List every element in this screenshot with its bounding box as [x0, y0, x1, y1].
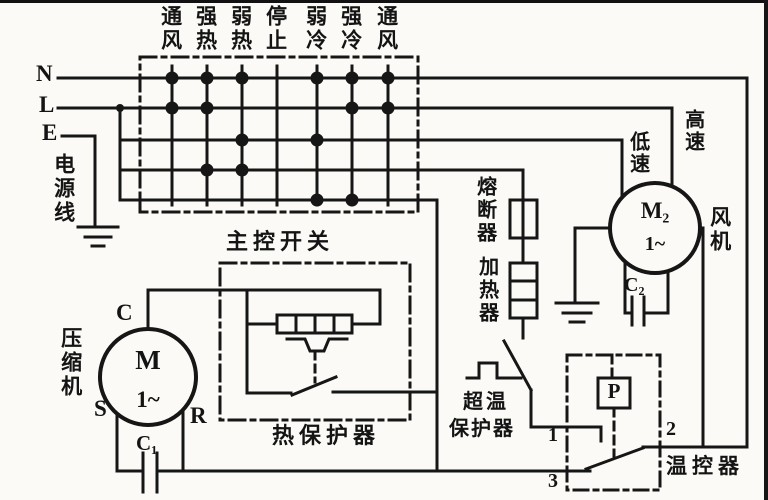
page-right-edge	[764, 0, 768, 500]
main-switch-matrix	[140, 57, 418, 212]
contact-dot	[346, 72, 359, 85]
label-overtemp-1: 超温	[463, 392, 509, 414]
overtemp-bimetal	[467, 363, 521, 378]
label-fuse: 熔断器	[473, 176, 495, 245]
switch-mode-label-6: 强冷	[339, 5, 362, 53]
label-high-speed: 高速	[681, 109, 703, 153]
contact-dot	[201, 72, 214, 85]
label-low-speed: 低速	[626, 131, 648, 175]
protector-bimetal	[287, 339, 347, 351]
contact-dot	[311, 194, 324, 207]
switch-mode-label-7: 通风	[375, 5, 398, 53]
contact-dot	[201, 164, 214, 177]
thermal-protector	[220, 263, 437, 420]
label-terminal-r: R	[190, 404, 207, 429]
contact-dot	[382, 102, 395, 115]
fan-circuit	[556, 78, 747, 447]
label-fan: 风机	[708, 206, 731, 254]
label-terminal-s: S	[94, 397, 107, 422]
contact-dot	[346, 102, 359, 115]
label-line-l: L	[39, 93, 54, 118]
label-thermostat-3: 3	[548, 471, 558, 493]
label-thermostat: 温控器	[666, 455, 744, 478]
label-compressor-phase: 1~	[122, 388, 174, 413]
contact-dot	[166, 72, 179, 85]
label-compressor: 压缩机	[59, 327, 82, 399]
label-capacitor-c1: C₁	[136, 432, 157, 455]
label-thermostat-1: 1	[548, 425, 558, 447]
switch-mode-label-2: 强热	[194, 5, 217, 53]
label-sensor-p: P	[598, 380, 630, 403]
fan-motor-circle	[610, 183, 700, 273]
switch-mode-label-1: 通风	[159, 5, 182, 53]
label-fan-phase: 1~	[633, 234, 677, 256]
label-line-e: E	[42, 121, 57, 146]
contact-dot	[311, 72, 324, 85]
overtemp-switch-arm	[504, 341, 531, 390]
contact-dot	[166, 102, 179, 115]
contact-dot	[382, 72, 395, 85]
label-fan-motor: M₂	[633, 199, 677, 224]
switch-mode-label-4: 停止	[264, 5, 287, 53]
contact-dot	[311, 134, 324, 147]
switch-mode-label-5: 弱冷	[304, 5, 327, 53]
label-capacitor-c2: C₂	[624, 275, 644, 297]
page-top-edge	[0, 0, 768, 3]
label-thermostat-2: 2	[666, 419, 676, 441]
label-terminal-c: C	[116, 301, 133, 326]
label-power-cord: 电源线	[52, 153, 75, 225]
label-compressor-motor: M	[122, 346, 174, 375]
contact-dot	[201, 102, 214, 115]
heater-symbol	[510, 263, 537, 318]
switch-mode-label-3: 弱热	[229, 5, 252, 53]
contact-dot	[346, 194, 359, 207]
contact-dot	[236, 164, 249, 177]
contact-dot	[236, 72, 249, 85]
label-heater: 加热器	[475, 256, 497, 325]
schematic-page: 通风强热弱热停止弱冷强冷通风 N L E 电源线 主控开关 压缩机 C S R …	[0, 0, 768, 500]
contact-dot	[236, 134, 249, 147]
label-overtemp-2: 保护器	[449, 419, 515, 441]
label-thermal-protector: 热保护器	[272, 424, 380, 448]
label-main-switch: 主控开关	[226, 230, 334, 254]
label-line-n: N	[36, 62, 53, 87]
